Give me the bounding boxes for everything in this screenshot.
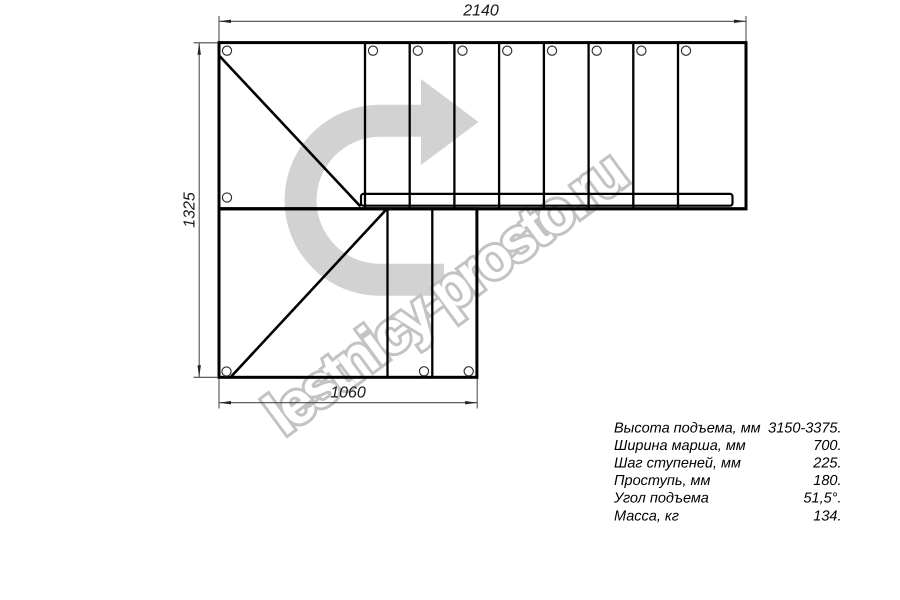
svg-text:Ширина марша, мм: Ширина марша, мм	[614, 438, 746, 454]
svg-text:180.: 180.	[813, 473, 841, 489]
svg-text:2140: 2140	[462, 3, 499, 20]
svg-text:Высота подъема, мм: Высота подъема, мм	[614, 420, 761, 436]
svg-text:Угол подъема: Угол подъема	[613, 491, 709, 507]
svg-text:1325: 1325	[181, 192, 198, 228]
svg-text:Масса, кг: Масса, кг	[614, 508, 679, 524]
svg-text:700.: 700.	[813, 438, 841, 454]
svg-text:134.: 134.	[813, 508, 841, 524]
svg-text:51,5°.: 51,5°.	[803, 491, 841, 507]
svg-text:1060: 1060	[330, 385, 366, 402]
svg-text:Проступь, мм: Проступь, мм	[614, 473, 710, 489]
svg-text:Шаг ступеней, мм: Шаг ступеней, мм	[614, 456, 741, 472]
svg-text:225.: 225.	[812, 456, 841, 472]
svg-text:3150-3375.: 3150-3375.	[768, 420, 841, 436]
